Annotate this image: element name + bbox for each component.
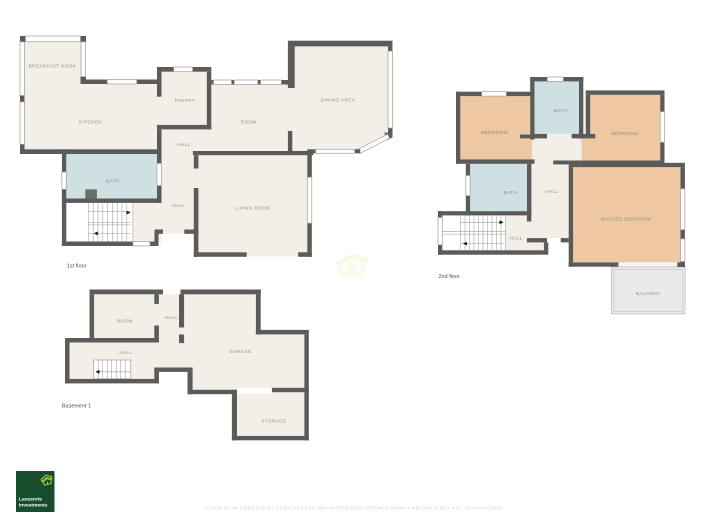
svg-text:LIVING ROOM: LIVING ROOM [235, 205, 270, 210]
svg-text:PANTRY: PANTRY [175, 98, 196, 103]
svg-text:FLOOR PLAN CREATED BY CUBICASA: FLOOR PLAN CREATED BY CUBICASA APP. MEAS… [204, 506, 504, 512]
svg-text:HALL: HALL [177, 142, 190, 147]
svg-text:BREAKFAST NOOK: BREAKFAST NOOK [29, 64, 77, 69]
svg-text:Basement 1: Basement 1 [62, 404, 91, 410]
svg-text:MASTER BEDROOM: MASTER BEDROOM [601, 216, 651, 221]
svg-text:HALL: HALL [119, 350, 132, 355]
svg-text:Investments: Investments [19, 503, 48, 509]
svg-text:STORAGE: STORAGE [261, 418, 286, 423]
svg-text:GARAGE: GARAGE [229, 349, 251, 354]
svg-text:BEDROOM: BEDROOM [611, 131, 638, 136]
svg-text:HALL: HALL [545, 189, 558, 194]
svg-text:2nd floor: 2nd floor [439, 274, 461, 280]
svg-text:BALCONY: BALCONY [636, 291, 661, 296]
svg-text:BATH: BATH [106, 179, 120, 184]
svg-text:HALL: HALL [172, 203, 185, 208]
svg-text:KITCHEN: KITCHEN [79, 119, 102, 124]
svg-text:ROOM: ROOM [241, 120, 257, 125]
svg-text:ROOM: ROOM [117, 319, 133, 324]
svg-text:BATH: BATH [554, 108, 568, 113]
svg-text:BATH: BATH [504, 190, 518, 195]
svg-text:DINING AREA: DINING AREA [321, 98, 356, 103]
svg-text:HALL: HALL [509, 235, 522, 240]
svg-text:HALL: HALL [165, 315, 178, 320]
svg-text:1st floor: 1st floor [67, 264, 87, 270]
svg-text:Lanzarote: Lanzarote [19, 496, 42, 502]
svg-text:BEDROOM: BEDROOM [481, 130, 508, 135]
